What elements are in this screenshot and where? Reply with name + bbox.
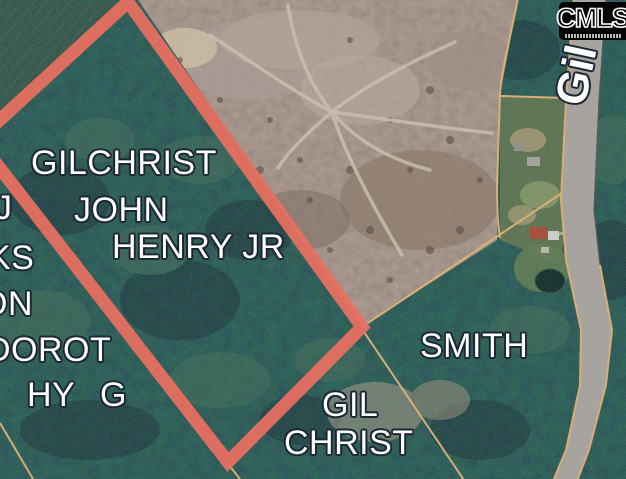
- parcel-label-gilchrist-line3: HENRY JR: [112, 230, 285, 266]
- parcel-label-gilchrist2-line2: CHRIST: [284, 426, 414, 462]
- parcel-label-fragment-line4: DOROT: [0, 333, 111, 369]
- mls-logo: CMLS: [559, 2, 626, 40]
- parcel-label-fragment-line1: J: [0, 191, 13, 227]
- parcel-label-smith: SMITH: [420, 329, 528, 365]
- parcel-label-gilchrist-line2: JOHN: [74, 193, 169, 229]
- parcel-label-gilchrist-line1: GILCHRIST: [31, 146, 217, 182]
- satellite-imagery: [0, 0, 626, 479]
- image-grain: [0, 0, 626, 479]
- parcel-label-fragment-line6: G: [100, 378, 127, 414]
- parcel-label-fragment-line2: KS: [0, 241, 34, 277]
- parcel-label-fragment-line3: ON: [0, 287, 33, 323]
- parcel-label-fragment-line5: HY: [27, 378, 75, 414]
- parcel-label-gilchrist2-line1: GIL: [322, 388, 378, 424]
- satellite-map-view[interactable]: GILCHRIST JOHN HENRY JR J KS ON DOROT HY…: [0, 0, 626, 479]
- mls-logo-text: CMLS: [556, 5, 626, 32]
- mls-logo-tagline: [565, 34, 621, 38]
